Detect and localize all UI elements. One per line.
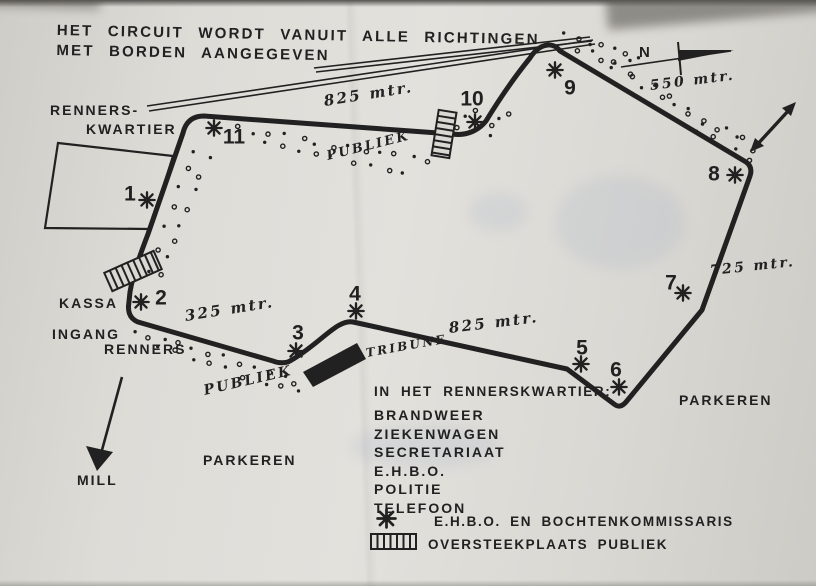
legend-heading: IN HET RENNERSKWARTIER: bbox=[374, 384, 714, 399]
corner-3-star-icon bbox=[287, 342, 305, 360]
corner-marshal-star-icon bbox=[374, 508, 434, 534]
corner-10-star-icon bbox=[466, 113, 484, 131]
corner-2-number: 2 bbox=[155, 288, 167, 309]
corner-11-number: 11 bbox=[223, 127, 245, 148]
corner-7-number: 7 bbox=[665, 273, 677, 294]
legend-facilities: BRANDWEERZIEKENWAGENSECRETARIAATE.H.B.O.… bbox=[374, 406, 714, 518]
legend-crossing-row: OVERSTEEKPLAATS PUBLIEK bbox=[370, 533, 668, 555]
legend-item: BRANDWEER bbox=[374, 406, 714, 425]
corner-9-number: 9 bbox=[564, 78, 576, 99]
corner-3-number: 3 bbox=[292, 323, 304, 344]
legend-item: ZIEKENWAGEN bbox=[374, 425, 714, 444]
legend-item: SECRETARIAAT bbox=[374, 443, 714, 462]
legend-item: POLITIE bbox=[374, 480, 714, 499]
legend-oversteekplaats-label: OVERSTEEKPLAATS PUBLIEK bbox=[428, 537, 668, 552]
corner-4-number: 4 bbox=[349, 284, 361, 305]
corner-2-star-icon bbox=[132, 293, 150, 311]
legend: IN HET RENNERSKWARTIER: BRANDWEERZIEKENW… bbox=[374, 384, 714, 518]
legend-star-row: E.H.B.O. EN BOCHTENKOMMISSARIS bbox=[374, 508, 734, 534]
corner-6-number: 6 bbox=[610, 360, 622, 381]
crossing-icon bbox=[370, 533, 417, 550]
corner-1-number: 1 bbox=[124, 184, 136, 205]
corner-10-number: 10 bbox=[460, 89, 483, 110]
legend-ehbo-bochtenkommissaris-label: E.H.B.O. EN BOCHTENKOMMISSARIS bbox=[434, 514, 734, 529]
legend-item: E.H.B.O. bbox=[374, 462, 714, 481]
corner-1-star-icon bbox=[138, 191, 156, 209]
corner-5-number: 5 bbox=[576, 338, 588, 359]
corner-8-star-icon bbox=[726, 166, 744, 184]
corner-9-star-icon bbox=[546, 61, 564, 79]
corner-11-star-icon bbox=[205, 119, 223, 137]
scanned-circuit-map: HET CIRCUIT WORDT VANUIT ALLE RICHTINGEN… bbox=[0, 0, 816, 586]
corner-8-number: 8 bbox=[708, 164, 720, 185]
photo-edge-bottom bbox=[0, 580, 816, 586]
